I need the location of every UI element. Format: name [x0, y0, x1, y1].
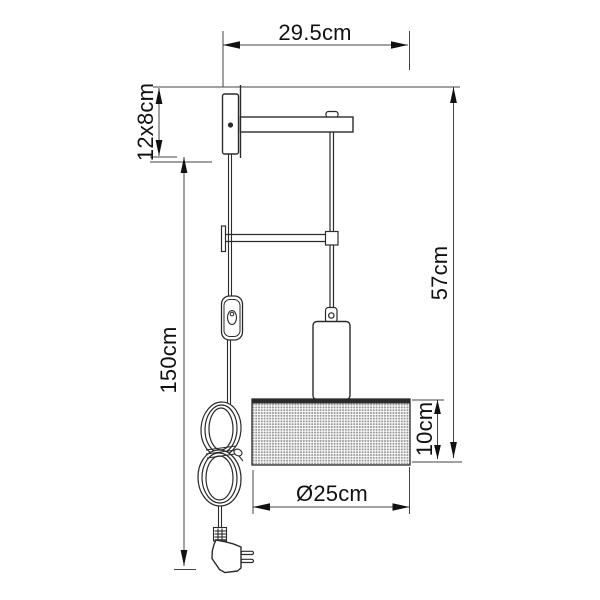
dimension-label-bracket-size: 12x8cm [133, 83, 159, 161]
strain-relief [214, 528, 227, 542]
mounting-arm [241, 112, 354, 133]
technical-drawing-canvas: 29.5cm 12x8cm 150cm 57cm 10cm Ø25cm [0, 0, 600, 600]
shade-mesh-texture [253, 404, 410, 465]
dimension-label-shade-diameter: Ø25cm [296, 481, 368, 507]
lamp-shade [252, 399, 410, 465]
power-cord-upper [229, 154, 232, 296]
plug-pin-top [241, 551, 254, 554]
power-plug [212, 540, 254, 573]
inline-switch [222, 296, 243, 340]
wall-plate [223, 85, 241, 158]
plug-pin-bottom [241, 559, 254, 562]
dimension-label-cord-length: 150cm [156, 326, 182, 393]
cable-coil [197, 401, 244, 507]
hanging-rod [330, 132, 334, 309]
cord-grip [326, 308, 338, 323]
support-crossbar [222, 226, 339, 252]
dimension-label-total-height: 57cm [427, 246, 453, 301]
lamp-socket [313, 322, 350, 400]
plug-body [212, 540, 241, 573]
wall-lamp-line-drawing [0, 0, 600, 600]
dimension-label-shade-height: 10cm [412, 402, 438, 457]
dimension-label-total-width: 29.5cm [278, 20, 351, 46]
